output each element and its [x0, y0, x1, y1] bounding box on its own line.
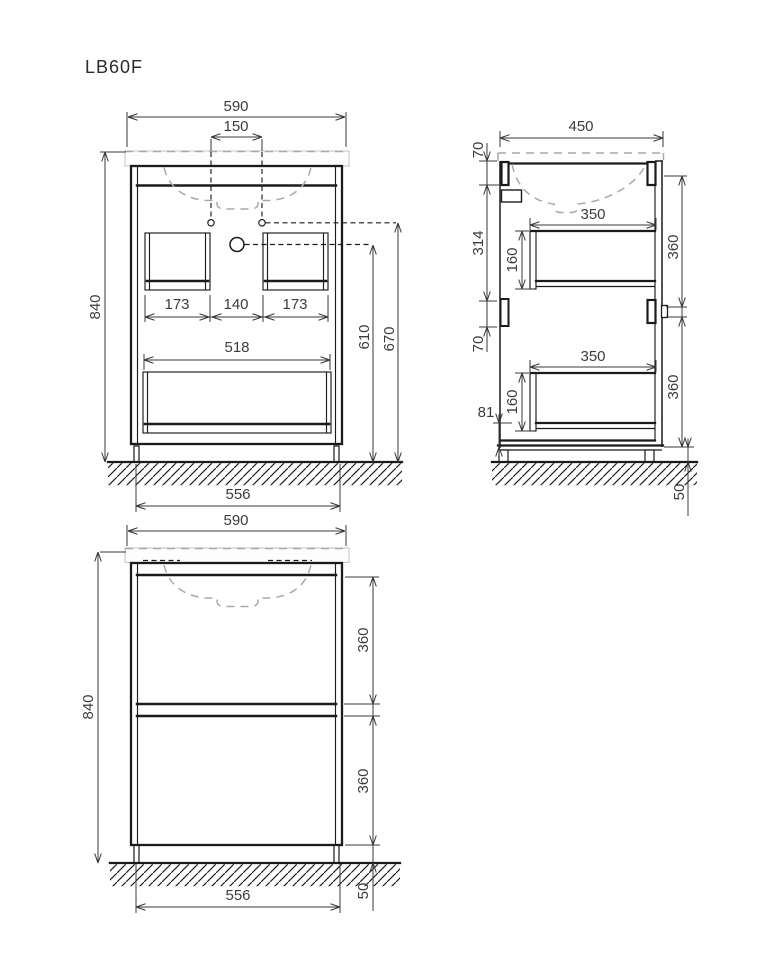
legs [134, 446, 339, 462]
dim-front-top-height: 360 [665, 234, 682, 259]
dim-side-depth: 450 [568, 118, 593, 135]
ground-hatch [108, 462, 402, 485]
dim-counter-gap: 70 [470, 142, 487, 159]
drawing-page: LB60F [0, 0, 774, 970]
front-view-open: 590 150 840 173 140 173 518 610 670 556 [87, 98, 402, 512]
dim-drawer-top-height: 160 [504, 247, 521, 272]
dim-front-bottom-height: 360 [665, 374, 682, 399]
dim-tap-spacing: 150 [223, 118, 248, 135]
dim-handle-wide: 518 [224, 339, 249, 356]
overflow-hole-left [208, 220, 214, 226]
bracket-top-right [648, 162, 656, 185]
siphon-box [502, 190, 522, 202]
side-basin-outline [512, 164, 645, 213]
model-title: LB60F [85, 57, 143, 77]
handle-recess-wide [143, 372, 331, 433]
side-view: 450 70 314 70 81 160 350 360 160 350 360… [470, 118, 697, 516]
bracket-top-left [502, 162, 509, 185]
dim-handle-center: 140 [223, 296, 248, 313]
dim-upper-height: 314 [470, 230, 487, 255]
bracket-mid-left [501, 299, 509, 326]
dim-side-leg-height: 50 [671, 484, 688, 501]
dim-drawer-bottom-depth: 350 [580, 348, 605, 365]
legs-closed [134, 846, 339, 864]
technical-drawing: LB60F [0, 0, 774, 970]
side-drawer-bottom [530, 373, 655, 431]
overflow-hole-right [259, 220, 265, 226]
countertop-closed [125, 548, 349, 563]
front-view-closed: 590 840 360 360 556 50 [80, 512, 400, 913]
side-base [498, 441, 663, 463]
dim-closed-front-bottom: 360 [355, 768, 372, 793]
dim-hinge-gap: 70 [470, 336, 487, 353]
dim-drawer-bottom-height: 160 [504, 389, 521, 414]
dim-drawer-top-depth: 350 [580, 206, 605, 223]
dim-closed-leg-height: 50 [355, 883, 372, 900]
cabinet-body-closed [131, 563, 342, 845]
dim-bottom-offset: 81 [478, 404, 495, 421]
dim-drain-height: 610 [356, 324, 373, 349]
bracket-mid-right [648, 300, 656, 323]
dim-front-base-width: 556 [225, 486, 250, 503]
basin-outline-closed [164, 565, 311, 607]
dim-front-width-top: 590 [223, 98, 248, 115]
dim-closed-front-top: 360 [355, 627, 372, 652]
dim-closed-base-width: 556 [225, 887, 250, 904]
dim-handle-right: 173 [282, 296, 307, 313]
countertop [125, 151, 349, 166]
side-ground-hatch [492, 462, 697, 485]
dim-closed-width-top: 590 [223, 512, 248, 529]
dim-overflow-height: 670 [381, 326, 398, 351]
drain-hole [230, 238, 244, 252]
handle-recess-left [145, 233, 210, 290]
dim-handle-left: 173 [164, 296, 189, 313]
basin-outline [164, 168, 311, 210]
side-drawer-top [530, 231, 655, 289]
side-countertop [498, 153, 664, 161]
dim-front-height: 840 [87, 294, 104, 319]
dim-closed-height: 840 [80, 694, 97, 719]
handle-recess-right [263, 233, 328, 290]
